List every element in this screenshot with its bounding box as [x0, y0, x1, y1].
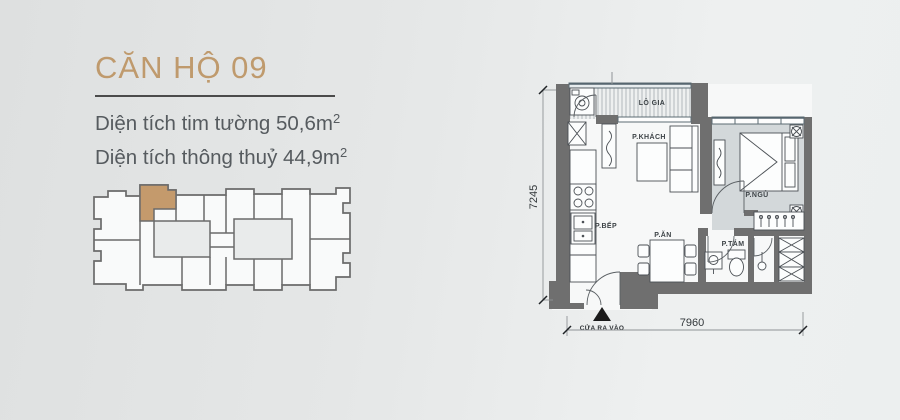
area-gross-sup: 2 [333, 111, 340, 126]
dimension-height: 7245 [528, 86, 556, 304]
kitchen-counter [570, 150, 596, 282]
washing-machine [570, 88, 594, 115]
tv-console [602, 124, 616, 168]
entrance-label: CỬA RA VÀO [580, 323, 624, 332]
toilet [728, 250, 745, 276]
area-line-gross: Diện tích tim tường 50,6m2 [95, 105, 425, 137]
fridge [568, 122, 586, 145]
wardrobe [754, 212, 804, 230]
area-line-net: Diện tích thông thuỷ 44,9m2 [95, 139, 425, 171]
core-left [154, 221, 210, 257]
coffee-table [637, 143, 667, 181]
dresser [714, 140, 725, 185]
ac-symbol-top [790, 125, 803, 138]
apartment-info: CĂN HỘ 09 Diện tích tim tường 50,6m2 Diệ… [95, 50, 425, 171]
building-outline [94, 185, 350, 290]
dim-height-value: 7245 [528, 185, 540, 209]
room-label-ngu: P.NGỦ [745, 190, 768, 199]
bed [740, 133, 798, 191]
page-title: CĂN HỘ 09 [95, 50, 425, 86]
page-background: CĂN HỘ 09 Diện tích tim tường 50,6m2 Diệ… [0, 0, 900, 420]
entrance-marker: CỬA RA VÀO [580, 307, 624, 332]
title-underline [95, 95, 335, 97]
core-right [234, 219, 292, 259]
area-net-sup: 2 [340, 145, 347, 160]
room-label-logia: LÔ GIA [639, 98, 666, 107]
room-label-an: P.ĂN [654, 230, 671, 239]
area-net-text: Diện tích thông thuỷ 44,9m [95, 146, 340, 169]
room-label-khach: P.KHÁCH [632, 132, 666, 141]
shaft-boxes [779, 238, 804, 281]
area-gross-text: Diện tích tim tường 50,6m [95, 112, 333, 135]
room-label-tam: P.TẮM [722, 239, 745, 248]
key-plan [86, 183, 362, 297]
sofa [670, 126, 698, 192]
floor-plan: LÔ GIA P.KHÁCH P.NGỦ P.BẾP P.ĂN P.TẮM CỬ… [515, 66, 860, 356]
loggia-slider [618, 117, 691, 122]
dim-width-value: 7960 [680, 317, 704, 329]
